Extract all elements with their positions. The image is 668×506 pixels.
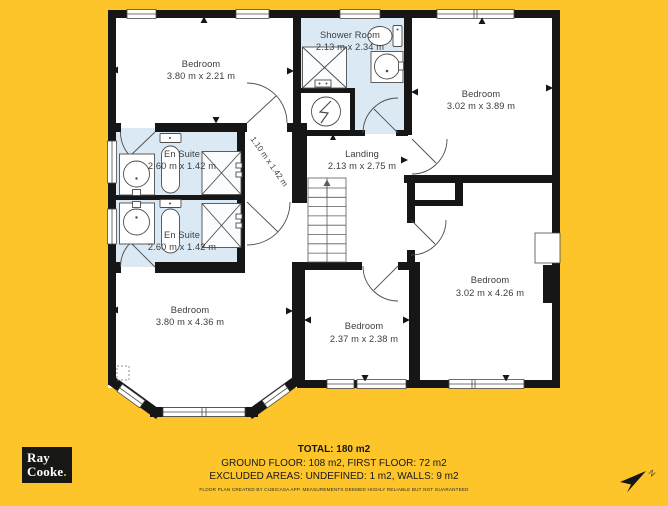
room-label: En Suite: [164, 149, 200, 159]
disclaimer: FLOOR PLAN CREATED BY CUBICASA APP. MEAS…: [0, 487, 668, 493]
excluded-areas-text: EXCLUDED AREAS: UNDEFINED: 1 m2, WALLS: …: [0, 470, 668, 484]
room-dims: 3.80 m x 2.21 m: [167, 71, 235, 81]
room-dims: 2.60 m x 1.42 m: [148, 242, 216, 252]
room-dims: 3.02 m x 3.89 m: [447, 101, 515, 111]
total-area: TOTAL: 180 m2: [0, 443, 668, 457]
room-label: Bedroom: [345, 321, 384, 331]
room-dims: 2.37 m x 2.38 m: [330, 334, 398, 344]
room-label: En Suite: [164, 230, 200, 240]
room-dims: 2.13 m x 2.75 m: [328, 161, 396, 171]
room-dims: 2.60 m x 1.42 m: [148, 161, 216, 171]
window: [108, 141, 117, 183]
room-label: Bedroom: [462, 89, 501, 99]
shower-icon: [202, 152, 242, 195]
window: [163, 408, 245, 417]
chimney-block: [543, 265, 560, 303]
room-dims: 3.02 m x 4.26 m: [456, 288, 524, 298]
window: [127, 10, 156, 19]
window: [340, 10, 380, 19]
sink-icon: [120, 202, 155, 245]
window: [236, 10, 269, 19]
stairs: [308, 178, 346, 262]
room-label: Bedroom: [471, 275, 510, 285]
room-label: Shower Room: [320, 30, 380, 40]
floor-plan: Bedroom 3.80 m x 2.21 m Shower Room 2.13…: [0, 0, 668, 501]
room-dims: 2.13 m x 2.34 m: [316, 42, 384, 52]
water-heater-icon: [312, 97, 341, 126]
window: [437, 10, 514, 19]
room-label: Bedroom: [171, 305, 210, 315]
window: [108, 209, 117, 244]
room-label: Bedroom: [182, 59, 221, 69]
window: [357, 380, 406, 389]
window: [449, 380, 524, 389]
footer: TOTAL: 180 m2 GROUND FLOOR: 108 m2, FIRS…: [0, 443, 668, 493]
window: [327, 380, 354, 389]
room-label: Landing: [345, 149, 379, 159]
floor-areas-text: GROUND FLOOR: 108 m2, FIRST FLOOR: 72 m2: [0, 457, 668, 471]
floor-plan-page: Bedroom 3.80 m x 2.21 m Shower Room 2.13…: [0, 0, 668, 501]
shower-icon: [202, 204, 242, 248]
sink-icon: [371, 52, 404, 83]
chimney-recess: [535, 233, 560, 263]
shower-icon: [303, 47, 347, 88]
room-dims: 3.80 m x 4.36 m: [156, 317, 224, 327]
